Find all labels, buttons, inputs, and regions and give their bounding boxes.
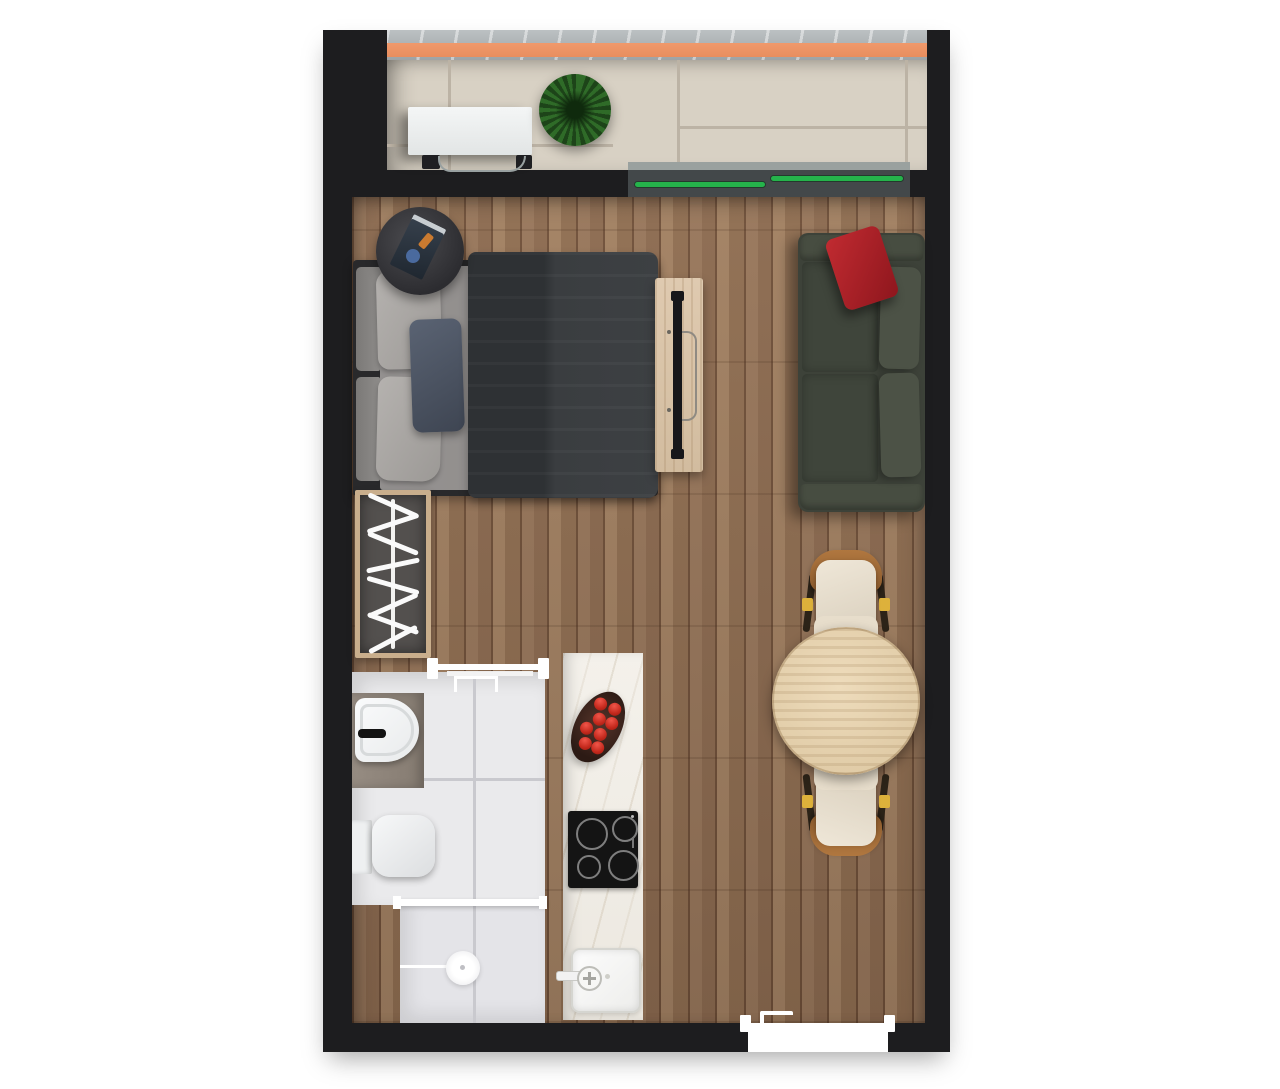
duvet [468,252,658,498]
tile-grout [677,126,927,129]
potted-plant [539,74,611,146]
divider-end-cap [393,896,401,909]
chair-yellow-band [879,598,890,611]
ac-unit-cable [438,156,526,172]
dining-table [772,627,920,775]
drain-hole [460,965,465,970]
tv-bracket-handle [682,331,697,421]
tomato [606,701,624,719]
bathroom-door-handle [454,676,498,692]
screw [667,408,671,412]
burner [577,855,601,879]
plant-center [555,90,595,130]
sofa-seat-cushion [802,374,878,482]
tile-grout [677,60,680,170]
sink-faucet [358,729,386,738]
entry-door-jamb [884,1015,895,1032]
magazine [390,214,447,280]
ac-unit [408,107,532,155]
kitchen-faucet [577,966,602,991]
burner [576,818,608,850]
cooktop-indicator [631,815,634,818]
tv-console [655,278,703,472]
tv-panel-end [671,291,684,301]
divider-end-cap [539,896,547,909]
tomato [592,695,610,713]
balcony-orange-strip [387,43,927,57]
burner [612,816,638,842]
accent-pillow-navy [409,318,465,433]
tile-grout [905,60,908,170]
tv-panel [673,291,682,459]
entry-door-leaf [760,1011,793,1046]
chair-yellow-band [879,795,890,808]
window-glass-left [635,182,765,187]
cooktop-control [632,837,634,848]
cooktop [568,811,638,888]
screw [667,330,671,334]
entry-door-jamb [740,1015,751,1032]
chair-yellow-band [802,598,813,611]
chair-yellow-band [802,795,813,808]
sink-drain-button [605,974,610,979]
shower-drain [446,951,480,985]
sofa-armrest-bottom [800,484,923,510]
tv-panel-end [671,449,684,459]
floor-plan [323,30,950,1052]
faucet-handle [588,972,591,985]
sofa [798,233,925,512]
toilet [372,815,435,877]
floor-plan-image [0,0,1280,1089]
wardrobe [355,490,431,658]
window-glass-right [771,176,903,181]
bathroom [323,650,563,1023]
toilet-tank [352,820,372,874]
sofa-back-cushion [879,372,922,477]
drain-pipe [400,965,448,968]
burner [608,850,639,881]
nightstand-item-blue [406,249,420,263]
shower-glass-divider [397,899,547,906]
nightstand [376,207,464,295]
bathroom-door-threshold [437,664,540,670]
